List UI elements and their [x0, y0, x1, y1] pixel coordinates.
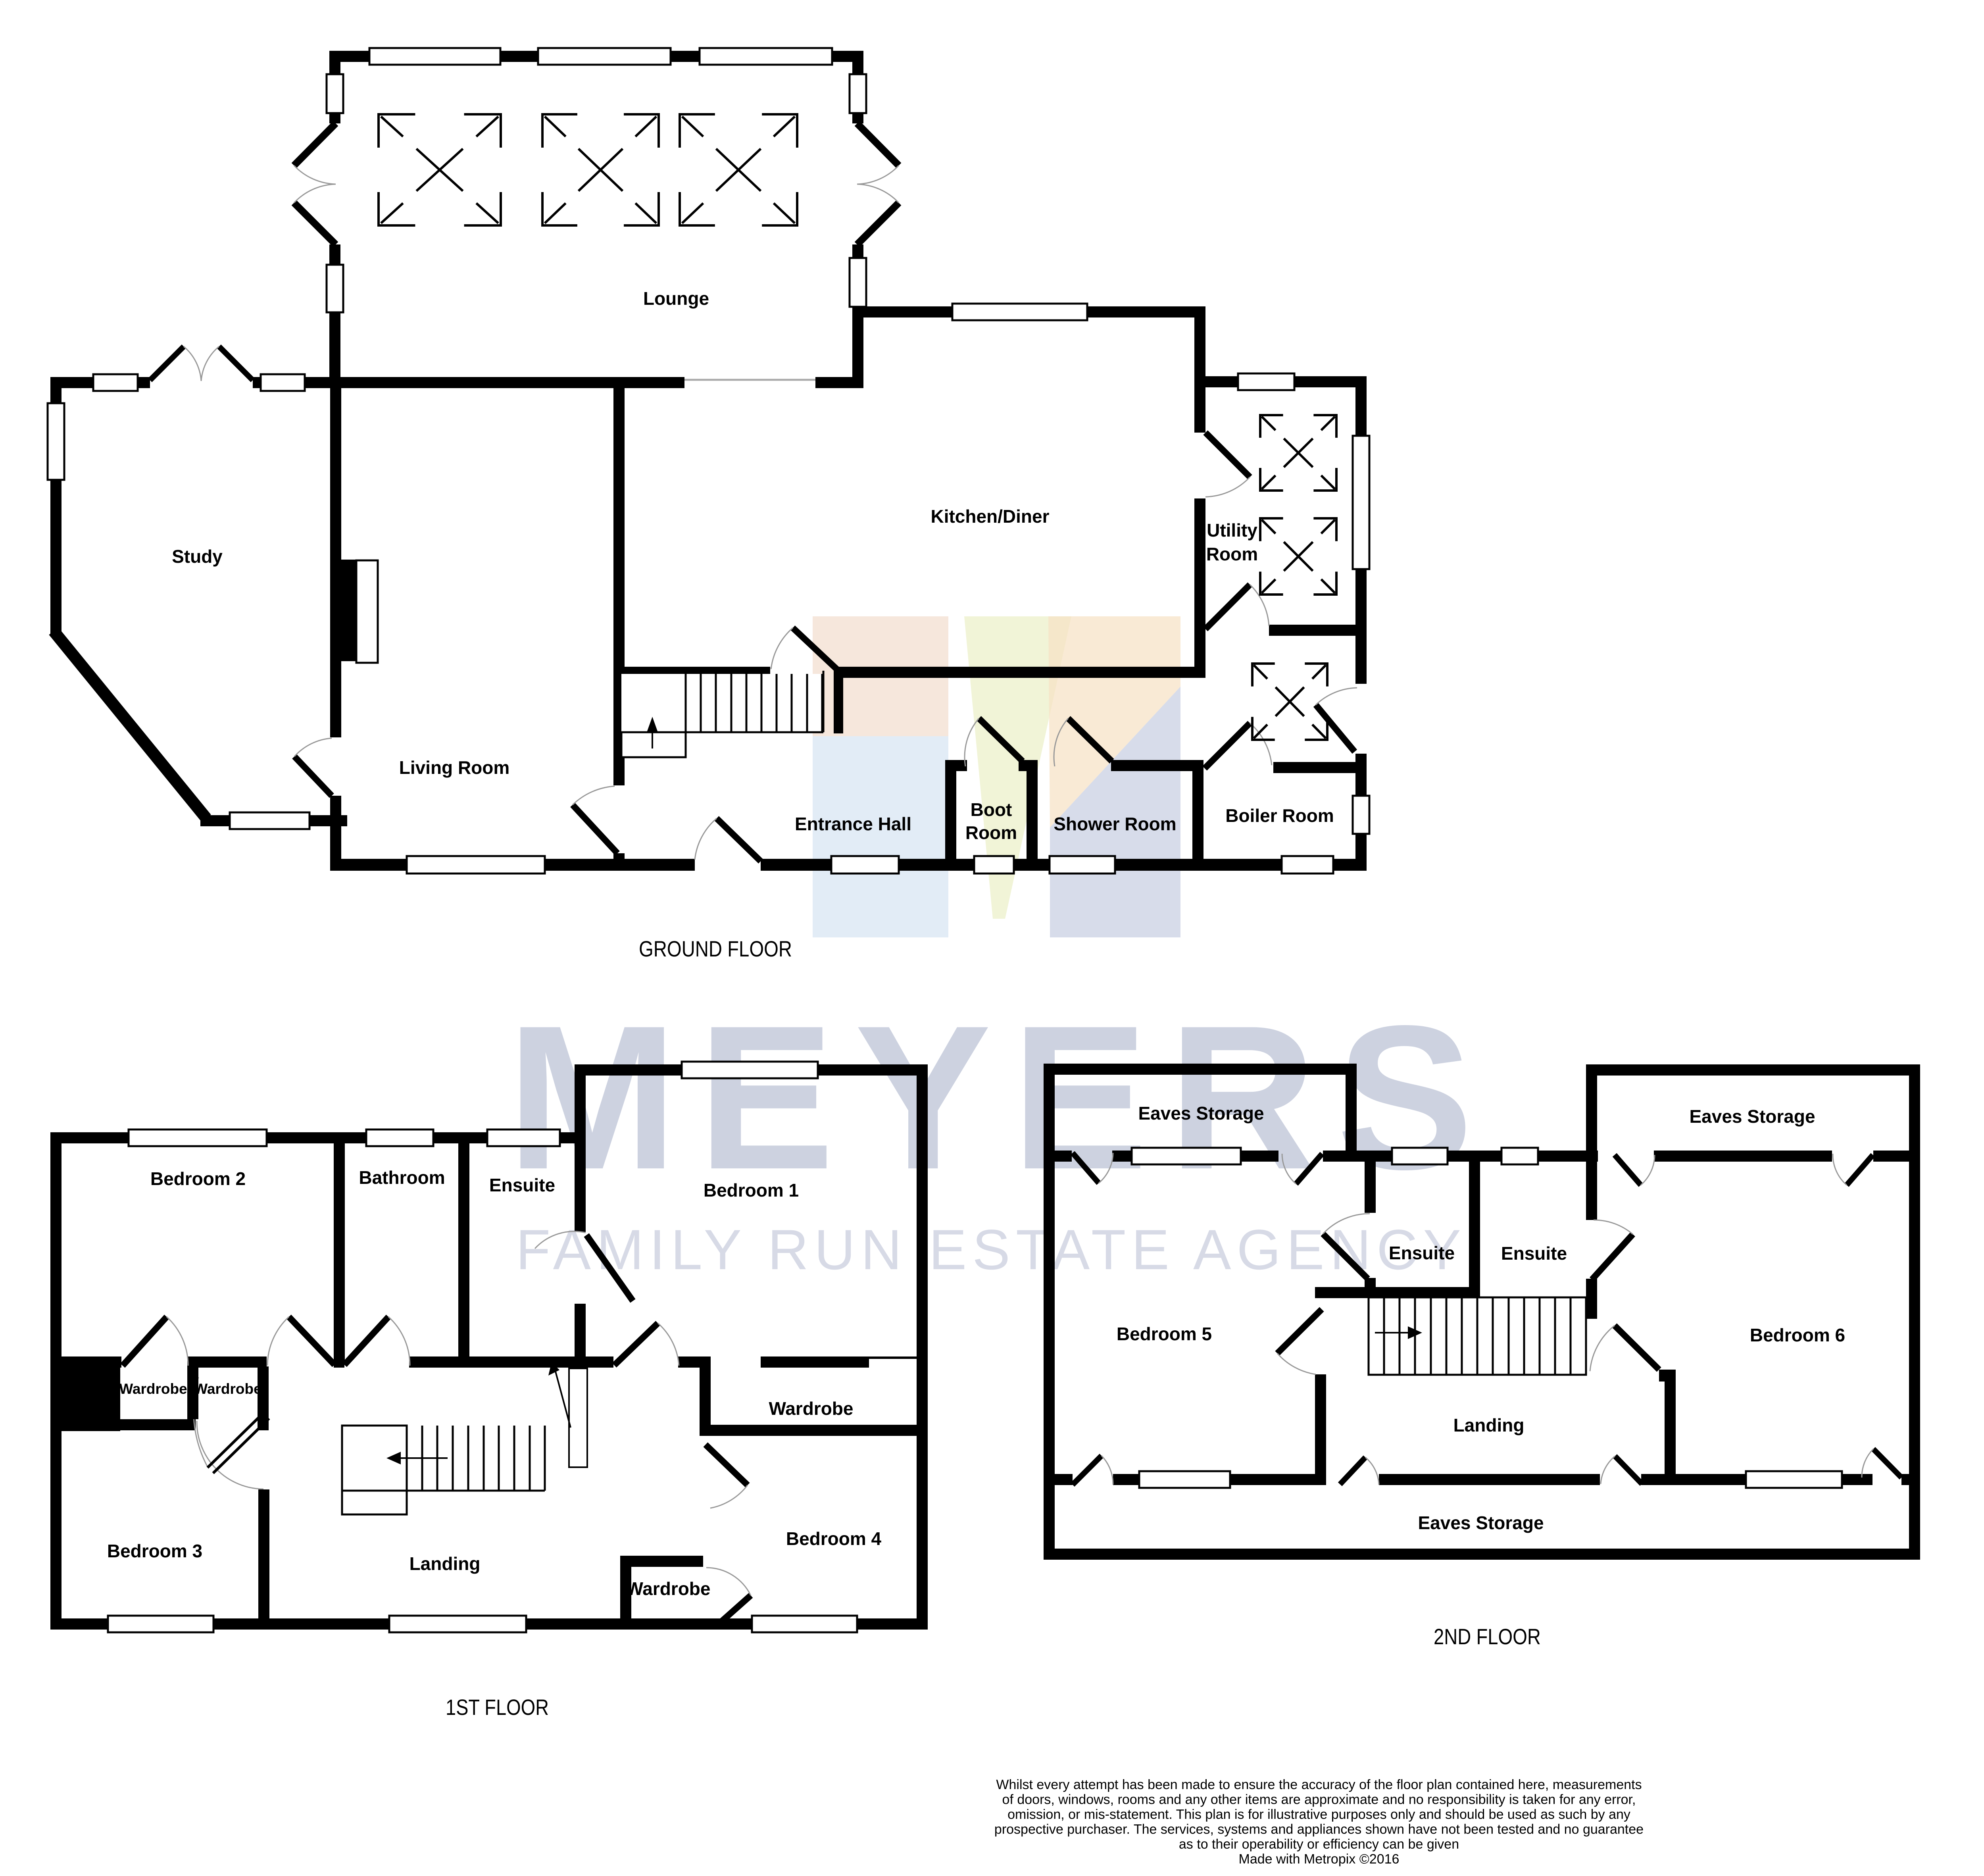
- svg-text:Study: Study: [172, 546, 223, 567]
- svg-text:Boot: Boot: [971, 799, 1012, 820]
- svg-text:Whilst every attempt has been: Whilst every attempt has been made to en…: [996, 1777, 1642, 1792]
- svg-text:2ND FLOOR: 2ND FLOOR: [1434, 1624, 1541, 1649]
- svg-text:1ST FLOOR: 1ST FLOOR: [446, 1695, 549, 1720]
- svg-text:Ensuite: Ensuite: [1389, 1243, 1455, 1263]
- svg-text:prospective purchaser. The ser: prospective purchaser. The services, sys…: [994, 1822, 1644, 1837]
- svg-text:GROUND FLOOR: GROUND FLOOR: [639, 936, 792, 961]
- svg-text:Bedroom 3: Bedroom 3: [107, 1541, 202, 1561]
- svg-text:Wardrobe: Wardrobe: [769, 1398, 854, 1419]
- svg-text:Wardrobe: Wardrobe: [626, 1578, 711, 1599]
- svg-text:Kitchen/Diner: Kitchen/Diner: [930, 506, 1049, 527]
- svg-text:Shower Room: Shower Room: [1054, 814, 1176, 834]
- svg-text:Eaves Storage: Eaves Storage: [1138, 1103, 1264, 1124]
- svg-text:Bedroom 6: Bedroom 6: [1750, 1325, 1845, 1345]
- svg-text:as to their operability or eff: as to their operability or efficiency ca…: [1179, 1837, 1459, 1852]
- svg-text:Entrance Hall: Entrance Hall: [795, 814, 911, 834]
- svg-text:Lounge: Lounge: [643, 288, 709, 309]
- svg-text:Landing: Landing: [1453, 1415, 1525, 1435]
- svg-text:FAMILY RUN ESTATE AGENCY: FAMILY RUN ESTATE AGENCY: [516, 1218, 1461, 1281]
- svg-text:Bedroom 5: Bedroom 5: [1117, 1324, 1212, 1344]
- svg-text:Ensuite: Ensuite: [489, 1175, 555, 1195]
- svg-text:omission, or mis-statement. Th: omission, or mis-statement. This plan is…: [1007, 1807, 1630, 1822]
- svg-text:Wardrobe: Wardrobe: [194, 1381, 261, 1397]
- svg-text:Living Room: Living Room: [399, 757, 510, 778]
- svg-text:Eaves Storage: Eaves Storage: [1418, 1512, 1544, 1533]
- svg-text:Bedroom 2: Bedroom 2: [150, 1168, 246, 1189]
- svg-text:Ensuite: Ensuite: [1501, 1243, 1567, 1264]
- svg-text:Landing: Landing: [409, 1553, 481, 1574]
- svg-text:Bathroom: Bathroom: [359, 1167, 445, 1188]
- svg-text:Boiler Room: Boiler Room: [1225, 805, 1334, 826]
- svg-text:of doors, windows, rooms and a: of doors, windows, rooms and any other i…: [1002, 1792, 1636, 1807]
- svg-text:Wardrobe: Wardrobe: [119, 1381, 187, 1397]
- svg-text:Room: Room: [965, 822, 1017, 843]
- svg-text:Utility: Utility: [1207, 520, 1257, 541]
- svg-text:Eaves Storage: Eaves Storage: [1689, 1106, 1815, 1127]
- svg-text:Room: Room: [1206, 544, 1258, 564]
- svg-text:Bedroom 4: Bedroom 4: [786, 1528, 882, 1549]
- svg-text:Made with Metropix ©2016: Made with Metropix ©2016: [1239, 1852, 1400, 1867]
- svg-text:Bedroom 1: Bedroom 1: [704, 1180, 799, 1201]
